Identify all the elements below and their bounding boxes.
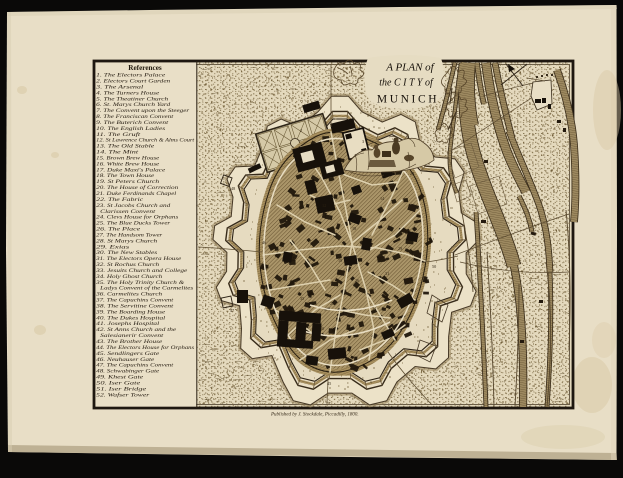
svg-text:22: 22 — [310, 241, 314, 246]
svg-text:Published by J. Stockdale, Pic: Published by J. Stockdale, Piccadilly, 1… — [270, 413, 359, 418]
svg-text:References: References — [128, 64, 162, 72]
svg-text:1: 1 — [340, 146, 342, 151]
svg-text:52. Wafser Tower: 52. Wafser Tower — [96, 391, 150, 398]
svg-text:46: 46 — [262, 240, 266, 245]
svg-text:3: 3 — [362, 139, 364, 144]
svg-text:A PLAN of: A PLAN of — [385, 62, 435, 74]
svg-text:23: 23 — [330, 301, 334, 306]
svg-text:48: 48 — [231, 186, 235, 191]
svg-text:5: 5 — [290, 206, 292, 211]
svg-text:45: 45 — [327, 381, 331, 386]
svg-text:19: 19 — [338, 258, 342, 263]
svg-text:30: 30 — [320, 326, 324, 331]
svg-text:2: 2 — [300, 128, 302, 133]
svg-text:35: 35 — [300, 296, 304, 301]
svg-text:50: 50 — [432, 264, 436, 269]
svg-text:31: 31 — [385, 271, 389, 276]
svg-text:12: 12 — [322, 203, 326, 208]
svg-text:MUNICH: MUNICH — [377, 94, 439, 106]
svg-text:the C I T Y of: the C I T Y of — [379, 78, 434, 89]
svg-text:18: 18 — [352, 226, 356, 231]
svg-text:47: 47 — [230, 308, 234, 313]
svg-text:28: 28 — [410, 171, 414, 176]
svg-text:26: 26 — [355, 278, 359, 283]
svg-text:29: 29 — [398, 246, 402, 251]
